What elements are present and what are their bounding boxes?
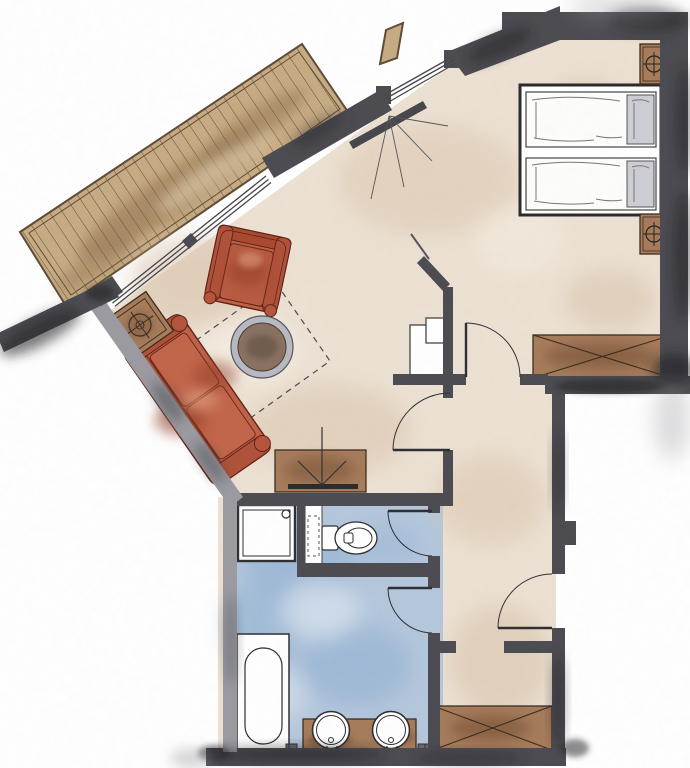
paper-texture-overlay [0, 0, 690, 768]
floor-plan-drawing [0, 0, 690, 768]
floor-plan-canvas [0, 0, 690, 768]
